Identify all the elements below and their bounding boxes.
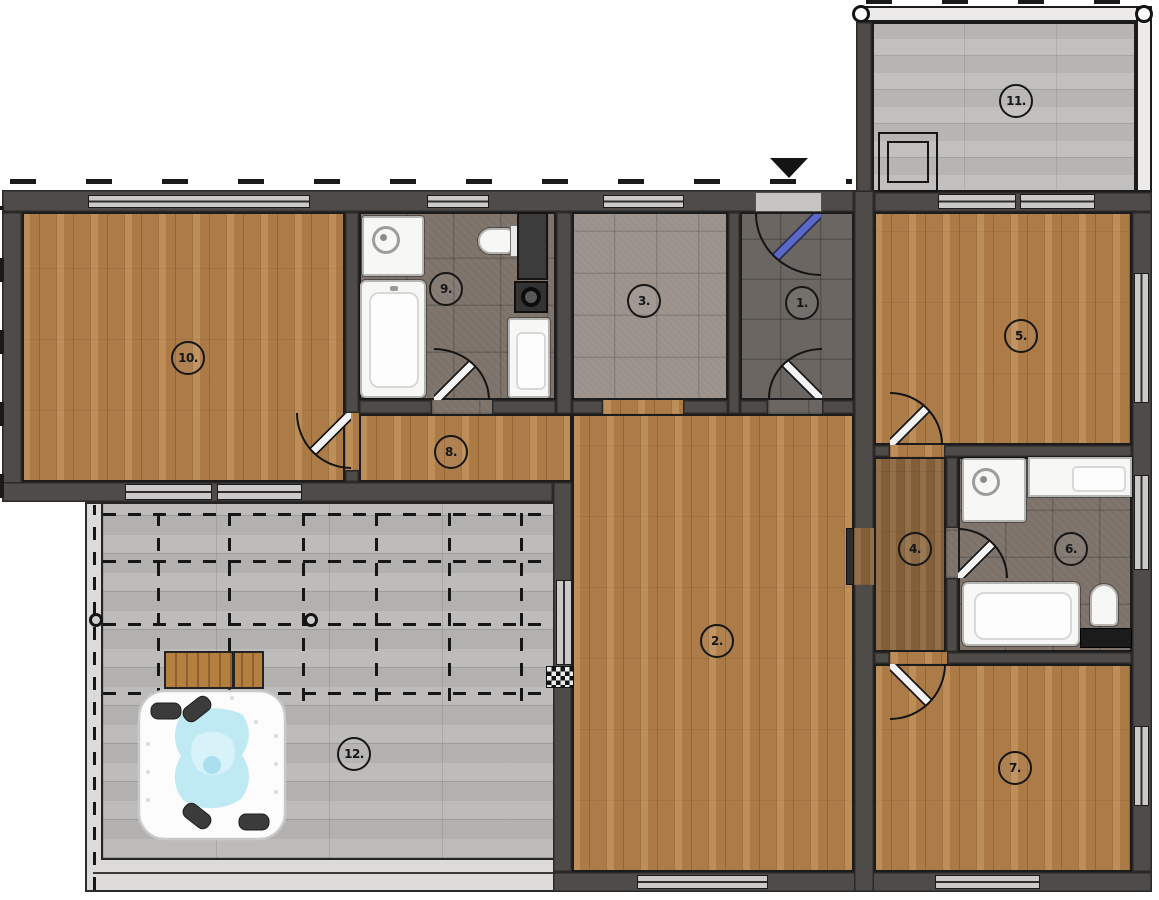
window [427, 195, 489, 208]
floor-plan: 1. 2. 3. 4. 5. 6. 7. 8. 9. 10. 11. 12. [0, 0, 1159, 900]
window [125, 484, 212, 500]
room-label-12: 12. [337, 737, 371, 771]
wall-segment [556, 212, 572, 414]
pergola-beam [302, 505, 305, 701]
wall-column-hatch [546, 666, 574, 688]
entry-direction-arrow [770, 158, 808, 178]
room-label-text: 2. [711, 634, 723, 648]
wall-segment [572, 400, 603, 414]
wall-segment [345, 470, 359, 482]
room-label-11: 11. [999, 84, 1033, 118]
shower-icon [962, 458, 1026, 522]
window [935, 875, 1040, 889]
shower-icon [362, 216, 424, 276]
room-label-text: 12. [344, 747, 364, 761]
room-label-text: 3. [638, 294, 650, 308]
room3-opening [603, 400, 683, 414]
room-label-9: 9. [429, 272, 463, 306]
pergola-post-icon [89, 613, 103, 627]
balcony-railing-right [1136, 6, 1152, 192]
roof-outline-dashes [0, 206, 4, 498]
wall-segment [492, 400, 556, 414]
door-opening [768, 400, 822, 414]
door-opening [890, 652, 947, 664]
window [1134, 726, 1149, 806]
wall-segment [874, 652, 890, 664]
window [88, 195, 310, 208]
toilet-icon [478, 228, 512, 254]
room-label-text: 10. [178, 351, 198, 365]
pergola-beam [157, 505, 160, 701]
tall-cabinet-icon [517, 212, 548, 280]
pergola-beam [103, 560, 553, 563]
room-label-3: 3. [627, 284, 661, 318]
pergola-beam [93, 505, 96, 890]
bench-icon [164, 651, 264, 689]
room-label-text: 7. [1009, 761, 1021, 775]
pergola-beam [103, 623, 553, 626]
radiator-icon [1080, 628, 1132, 648]
terrace-edge-line [93, 872, 555, 874]
wall-segment [683, 400, 728, 414]
window [637, 875, 768, 889]
room2-room4-opening [854, 528, 874, 585]
door-opening [890, 445, 944, 457]
railing-post-right [1135, 5, 1153, 23]
window [603, 195, 684, 208]
door-opening [946, 528, 958, 578]
window [556, 580, 572, 665]
room-label-8: 8. [434, 435, 468, 469]
room-label-1: 1. [785, 286, 819, 320]
room-label-10: 10. [171, 341, 205, 375]
window [217, 484, 302, 500]
wall-segment [946, 457, 958, 528]
wall-segment [944, 445, 1132, 457]
window [1134, 273, 1149, 403]
room-label-text: 11. [1006, 94, 1026, 108]
room-label-text: 8. [445, 445, 457, 459]
wall-segment [874, 445, 890, 457]
wall-segment [345, 212, 359, 413]
room-label-5: 5. [1004, 319, 1038, 353]
railing-post-left [852, 5, 870, 23]
room-label-2: 2. [700, 624, 734, 658]
pergola-beam [103, 513, 553, 516]
room-label-6: 6. [1054, 532, 1088, 566]
toilet-icon [1090, 584, 1118, 626]
wall-segment [359, 400, 432, 414]
roof-outline-dashes [10, 179, 852, 184]
pergola-beam [520, 505, 523, 701]
wall-segment [856, 22, 872, 192]
window [1020, 194, 1095, 209]
room-label-text: 9. [440, 282, 452, 296]
roof-outline-dashes [866, 0, 1152, 4]
window [938, 194, 1016, 209]
door-opening [432, 400, 492, 414]
room-label-7: 7. [998, 751, 1032, 785]
skylight-hatch-inner [887, 141, 929, 183]
wall-segment [740, 400, 768, 414]
bathtub-icon [360, 280, 426, 398]
pergola-beam [448, 505, 451, 701]
room-label-text: 1. [796, 296, 808, 310]
entry-threshold [755, 192, 822, 212]
room-label-text: 5. [1015, 329, 1027, 343]
sink-icon [508, 318, 550, 398]
room-label-text: 6. [1065, 542, 1077, 556]
wall-segment [947, 652, 1132, 664]
washing-machine-icon [514, 281, 548, 313]
wall-segment [2, 212, 22, 502]
hot-tub-icon [136, 688, 288, 842]
pergola-post-icon [304, 613, 318, 627]
room-label-4: 4. [898, 532, 932, 566]
window [1134, 475, 1149, 570]
wall-segment [946, 578, 958, 652]
vanity-counter-icon [1028, 457, 1132, 497]
sliding-door-leaf [846, 528, 854, 585]
pergola-beam [375, 505, 378, 701]
balcony-railing-top [860, 6, 1152, 22]
bathtub-icon [962, 582, 1080, 646]
room-label-text: 4. [909, 542, 921, 556]
wall-segment [728, 212, 740, 414]
wall-segment [822, 400, 854, 414]
